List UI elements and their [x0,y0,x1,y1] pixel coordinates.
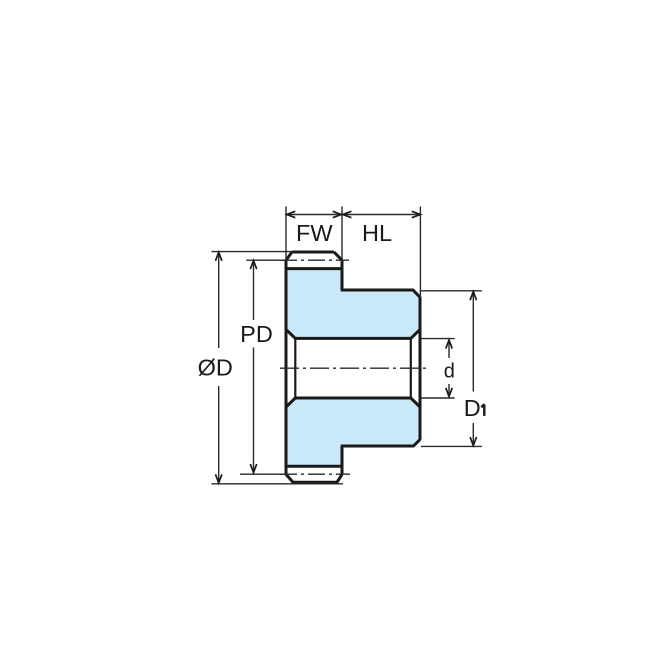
svg-text:d: d [444,361,455,383]
svg-text:PD: PD [240,321,273,347]
svg-text:HL: HL [362,220,392,246]
svg-text:ØD: ØD [198,354,233,380]
svg-text:D: D [464,395,481,421]
svg-text:FW: FW [296,220,333,246]
